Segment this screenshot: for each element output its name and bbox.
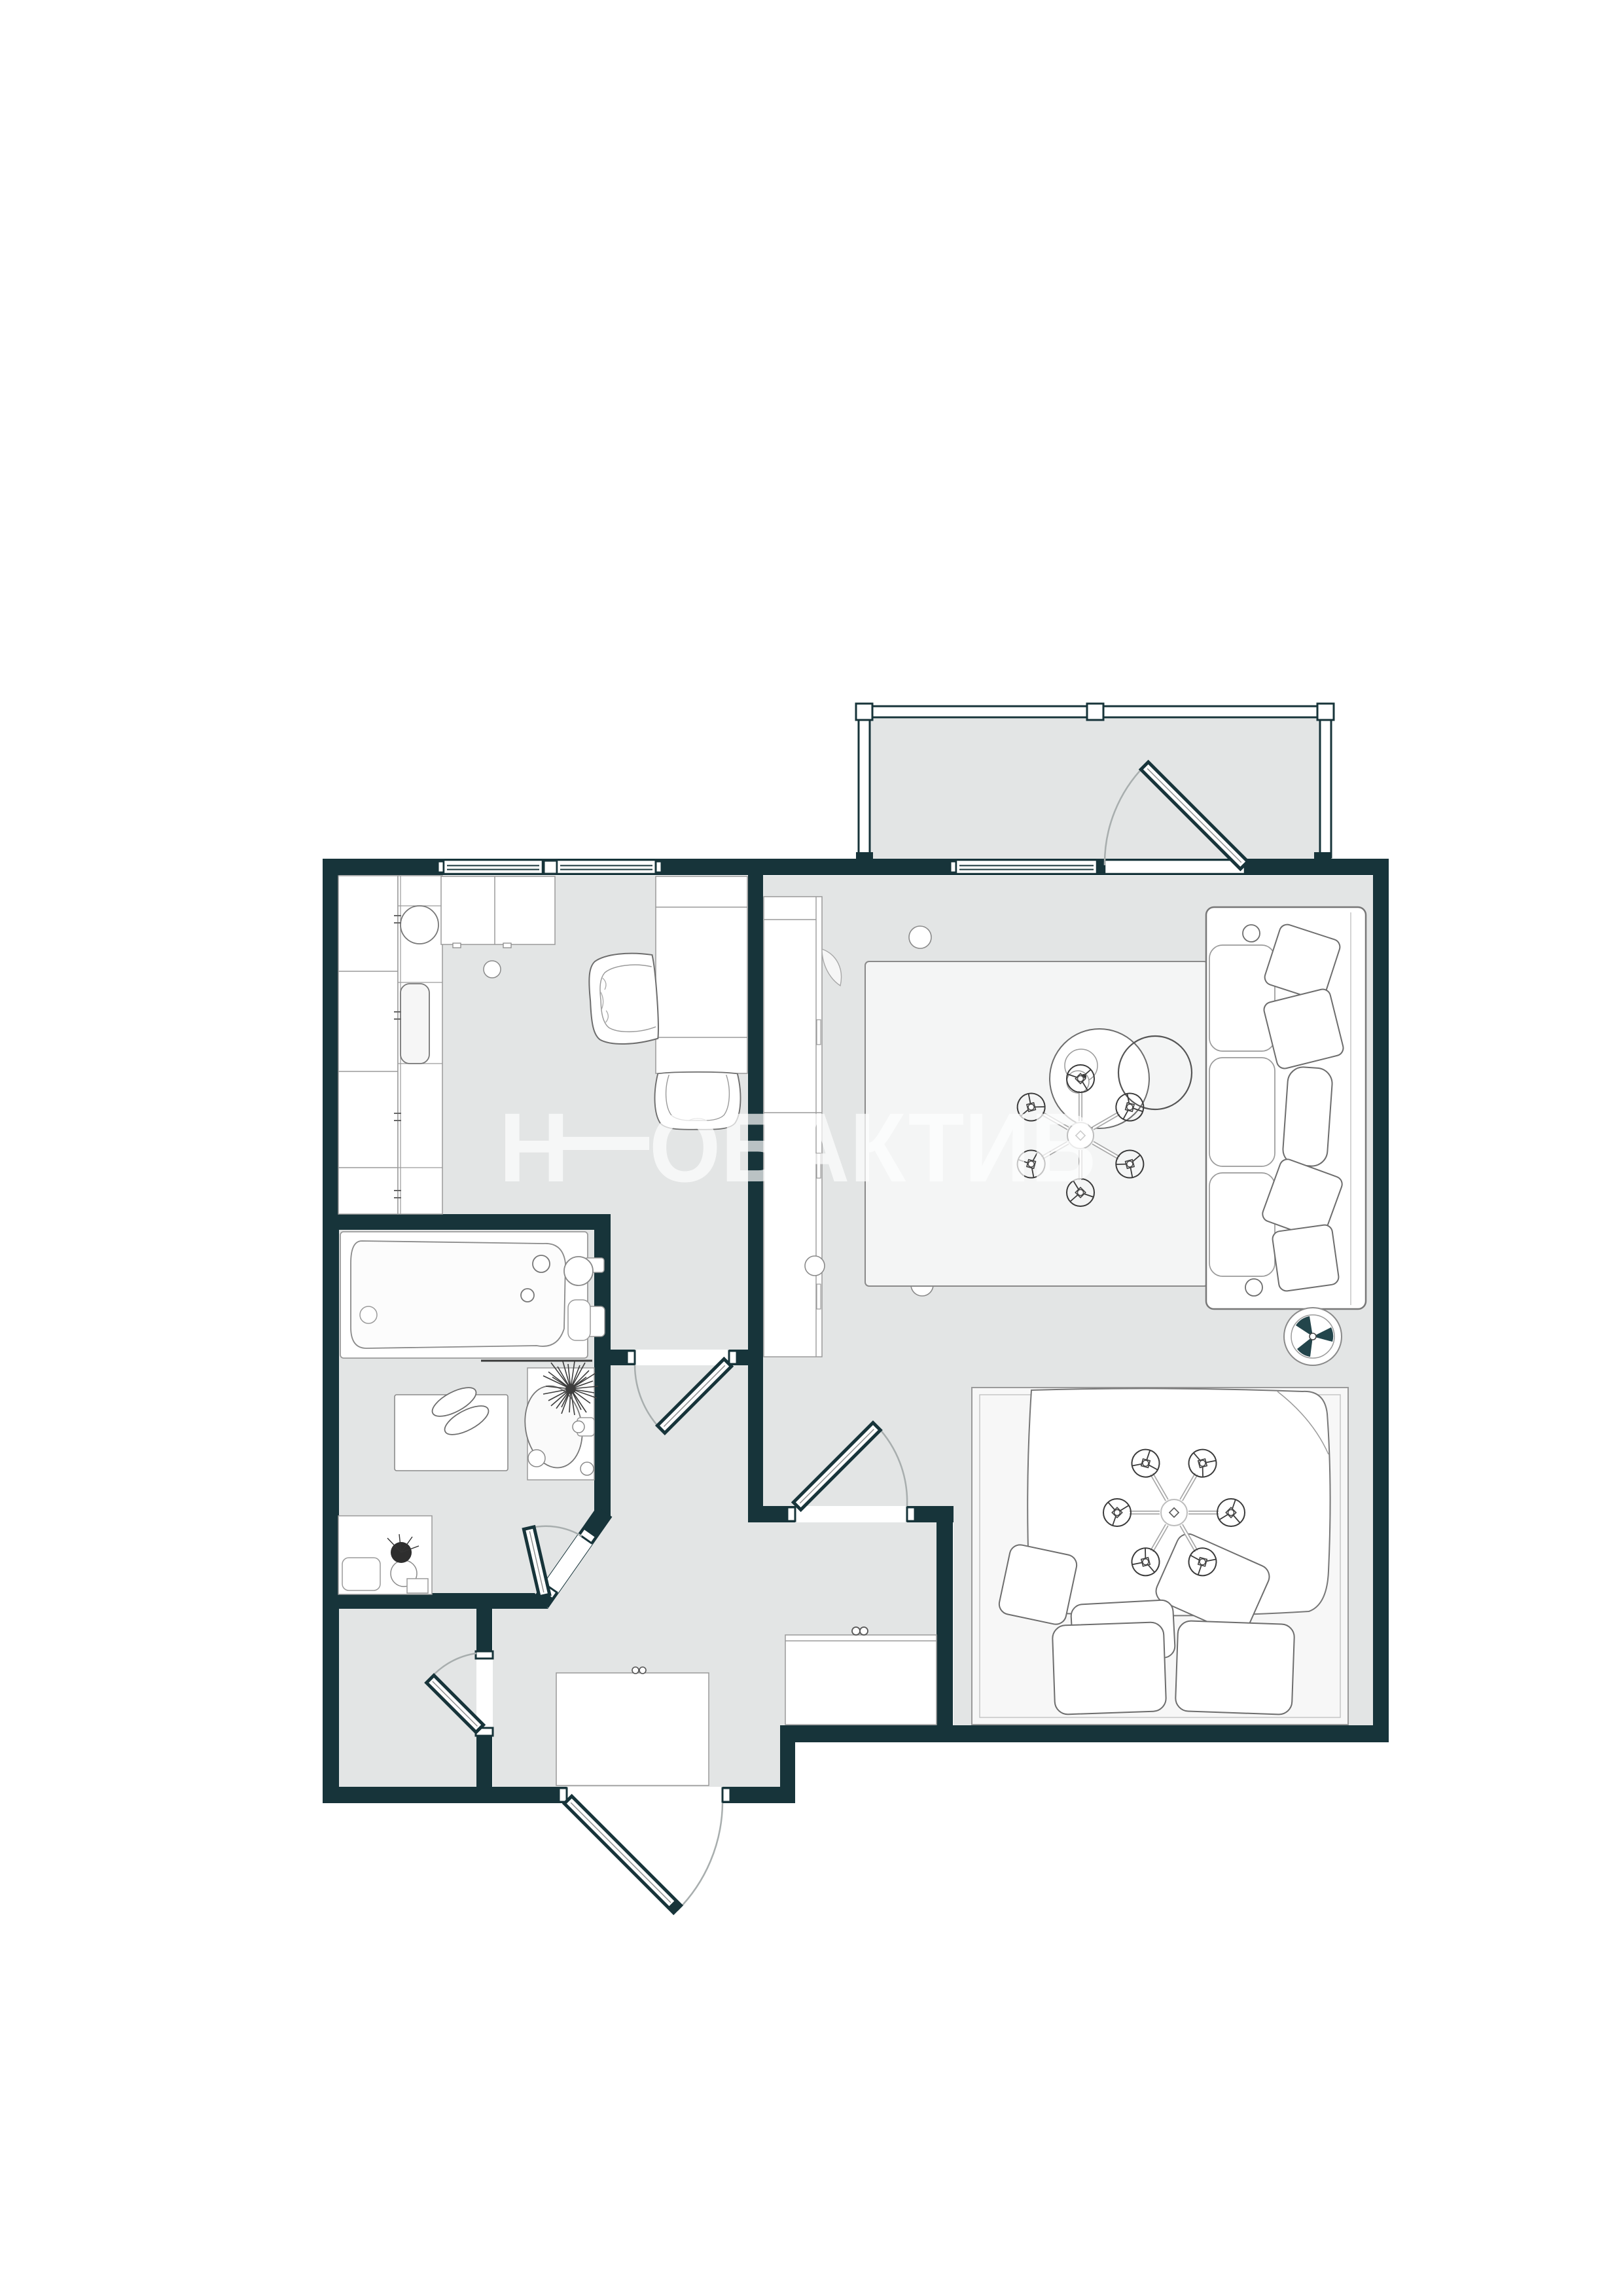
svg-text:Н: Н: [499, 1092, 569, 1202]
svg-text:ОБАКТИВ: ОБАКТИВ: [649, 1092, 1097, 1202]
